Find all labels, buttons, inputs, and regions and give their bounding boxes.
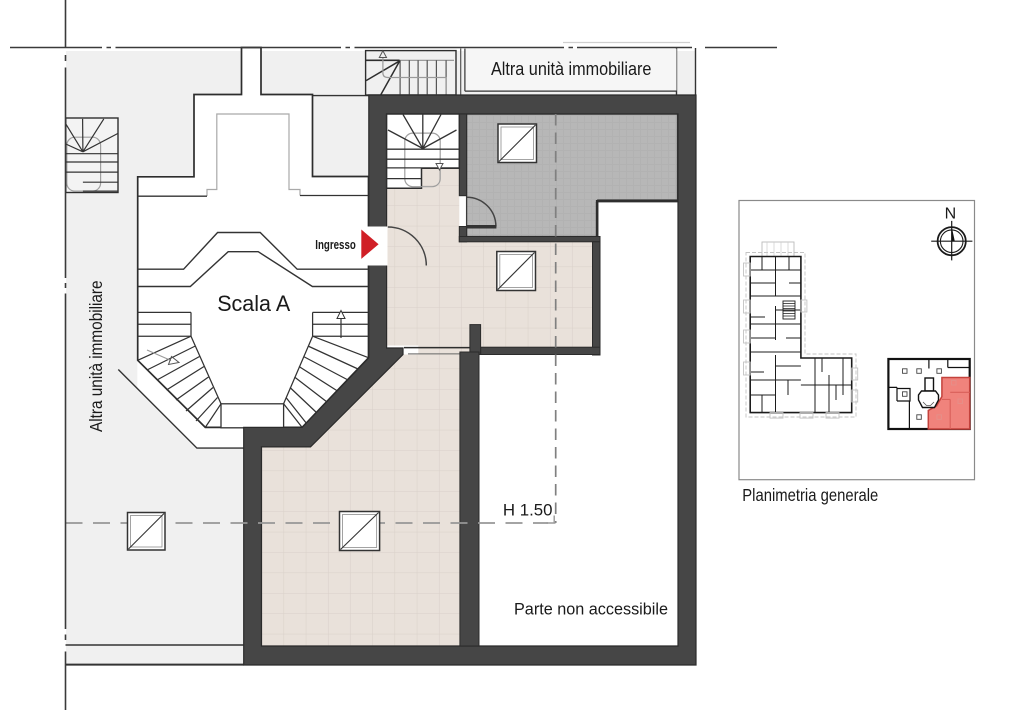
svg-text:Scala A: Scala A [217, 291, 290, 316]
svg-text:Altra unità immobiliare: Altra unità immobiliare [86, 280, 106, 432]
svg-text:Parte non accessibile: Parte non accessibile [514, 600, 668, 619]
svg-text:Ingresso: Ingresso [315, 238, 356, 252]
svg-text:Planimetria generale: Planimetria generale [742, 485, 878, 505]
svg-text:N: N [945, 206, 957, 223]
svg-text:H 1.50: H 1.50 [503, 502, 553, 520]
svg-text:Altra unità immobiliare: Altra unità immobiliare [491, 58, 652, 79]
